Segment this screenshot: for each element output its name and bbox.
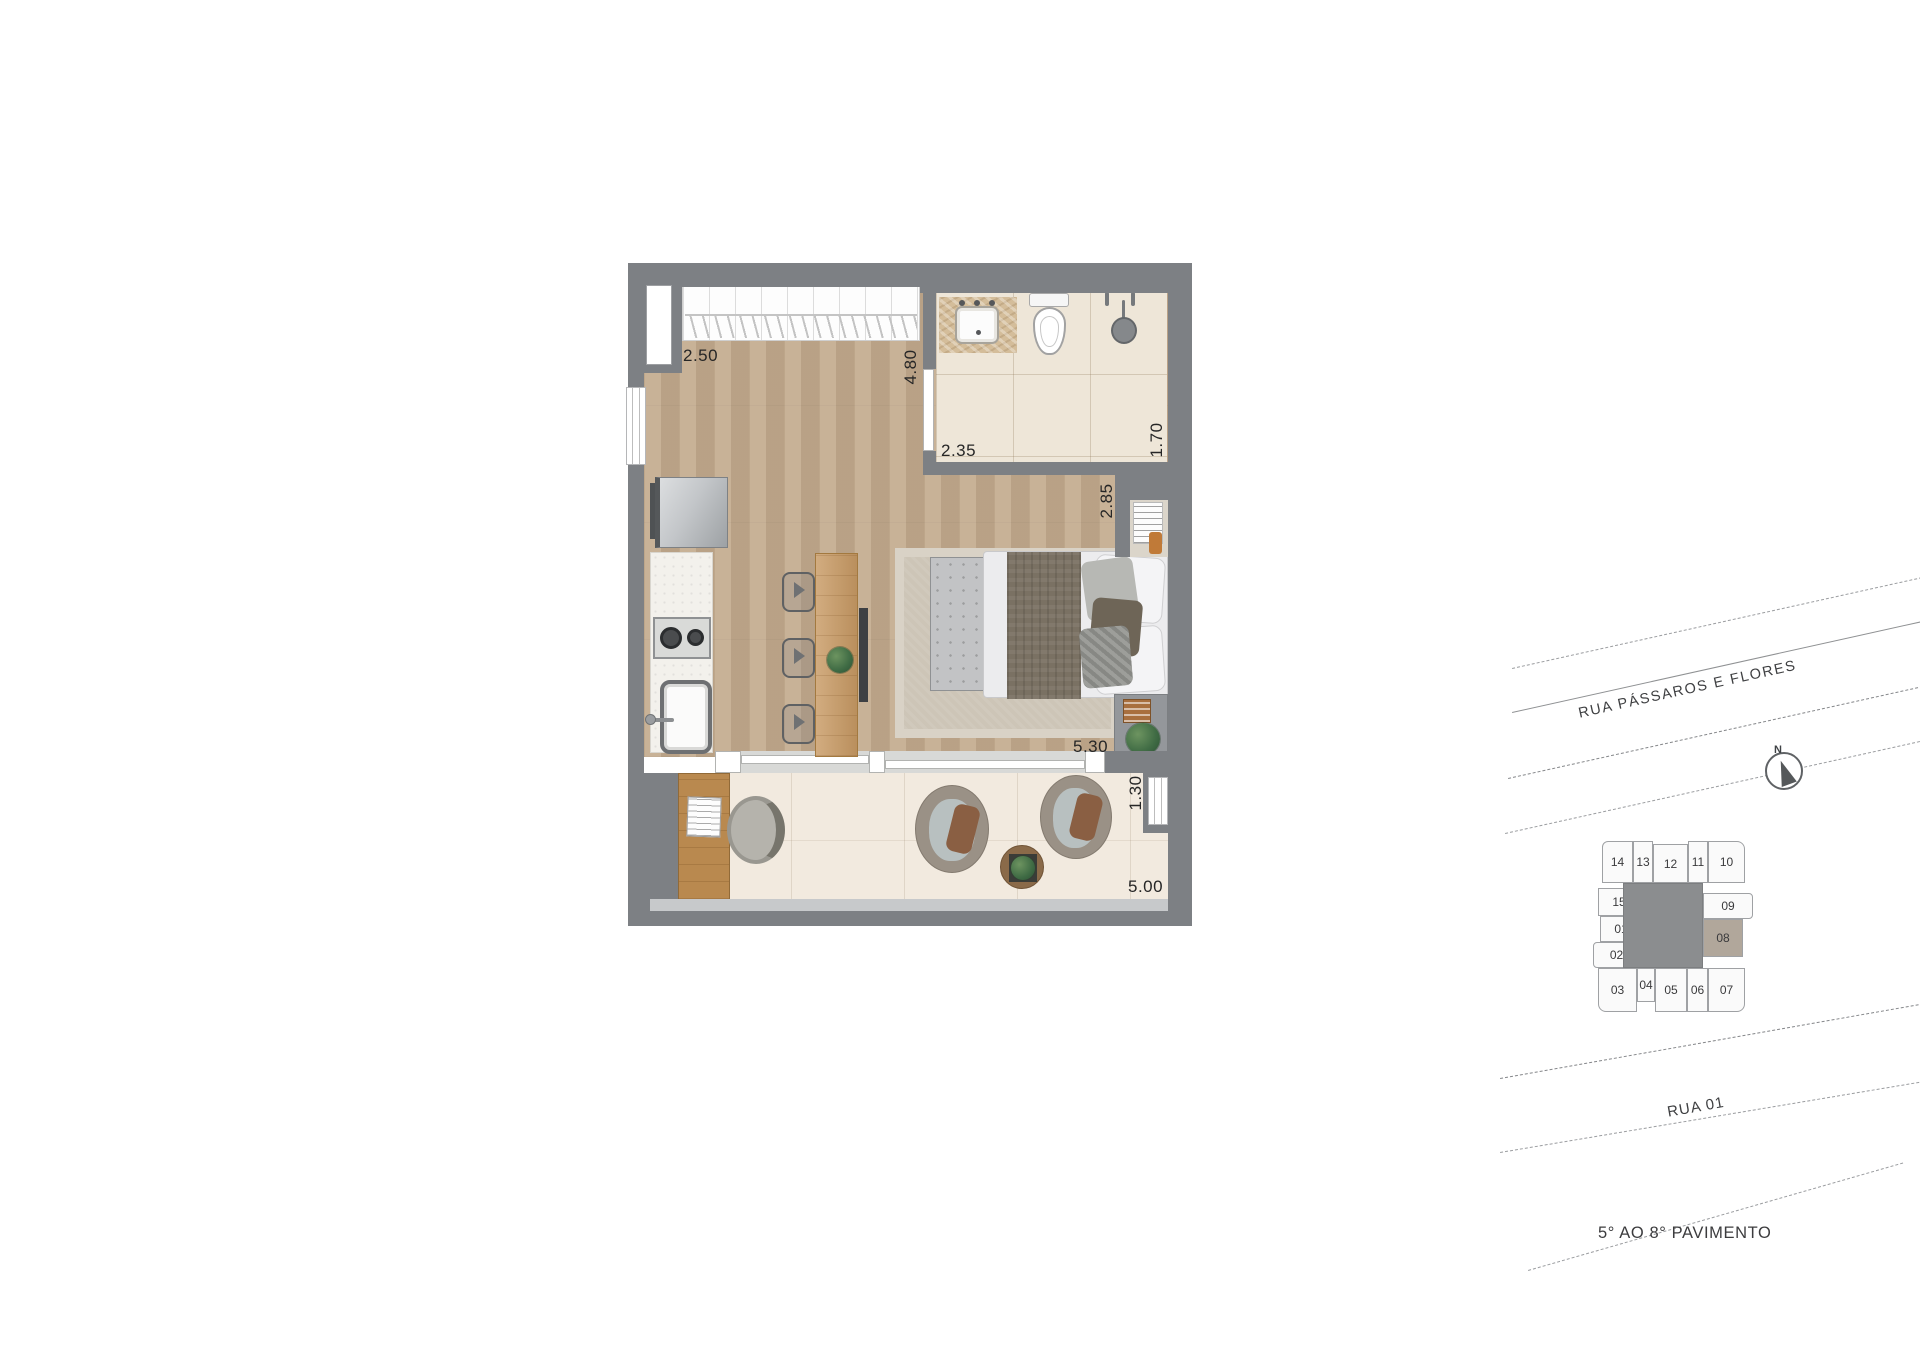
wall-top [628,263,1192,287]
wall-right [1168,263,1192,913]
dimension-bath-depth: 1.70 [1147,422,1167,457]
dimension-room-width: 5.30 [1073,737,1108,757]
bathroom-sink [955,306,999,344]
armchair-1 [915,785,989,873]
dimension-closet-width: 2.50 [683,346,718,366]
fridge [655,477,728,548]
keyplan-unit-06: 06 [1687,968,1708,1012]
island-plant [827,647,853,673]
keyplan-unit-07: 07 [1708,968,1745,1012]
bar-stool-1 [782,572,815,612]
coffee-table [1000,845,1044,889]
bed-bench [930,557,984,691]
shower-handle-1 [1105,292,1109,306]
headboard-niche [1130,500,1168,557]
shaft-niche [646,285,672,365]
wall-left [628,465,644,773]
street-bottom-line-3 [1528,1163,1903,1271]
dimension-balcony-depth: 1.30 [1126,775,1146,810]
kitchen-faucet-knob [645,714,656,725]
sink-drain [976,330,981,335]
compass-north-label: N [1774,744,1782,756]
shower-handle-2 [1131,292,1135,306]
shower-head [1111,317,1137,344]
keyplan-core [1623,883,1703,968]
nightstand [1114,694,1168,758]
street-top-line-3 [1508,681,1920,779]
bed-blanket [1007,552,1081,699]
street-bottom-line-2 [1500,1080,1920,1153]
bed-cushion-check [1078,625,1133,689]
keyplan-unit-11: 11 [1688,841,1708,883]
keyplan-unit-12: 12 [1653,844,1688,883]
sliding-door-panel-2 [885,760,1085,769]
keyplan-unit-14: 14 [1602,841,1633,883]
keyplan-unit-05: 05 [1655,968,1687,1012]
keyplan-unit-13: 13 [1633,841,1653,883]
wall-band-right [1105,751,1168,773]
wall-bathroom-bottom [923,462,1168,475]
stool-frame [794,714,805,730]
wall-headboard-stub [1115,475,1130,557]
bar-stool-2 [782,638,815,678]
keyplan-unit-08-highlighted: 08 [1703,919,1743,957]
street-top-line-4 [1505,733,1920,834]
nightstand-books [1123,699,1151,723]
dimension-balcony-width: 5.00 [1128,877,1163,897]
office-chair [727,796,785,864]
keyplan-unit-09: 09 [1703,893,1753,919]
burner-small [687,629,704,646]
street-top-line-2 [1512,616,1920,713]
toilet-bowl-inner [1040,316,1059,347]
floor-plan-page: 2.50 4.80 2.35 1.70 2.85 5.30 1.30 5.00 … [0,0,1920,1356]
coffee-table-plant [1011,856,1035,880]
stool-frame [794,648,805,664]
balcony-side-window [1148,777,1168,825]
burner-large [660,627,682,649]
balcony-sill [650,899,1168,911]
bed [983,551,1168,698]
wardrobe-closet [682,285,920,341]
bathroom-door [923,369,934,451]
wall-bathroom-top [920,285,1192,293]
stool-frame [794,582,805,598]
bar-stool-3 [782,704,815,744]
dimension-bed-width: 2.85 [1097,483,1117,518]
keyplan-unit-03: 03 [1598,968,1637,1012]
sliding-door-frame-left [715,751,741,773]
dimension-room-depth: 4.80 [901,349,921,384]
floor-caption: 5° AO 8° PAVIMENTO [1598,1224,1771,1243]
keyplan: 14 13 12 11 10 15 01 02 09 08 03 04 05 0… [1590,835,1760,1015]
entry-window [626,387,646,465]
keyplan-unit-04: 04 [1637,968,1655,1002]
wall-bottom [628,911,1192,926]
toilet-tank [1029,293,1069,307]
niche-deco-vase [1149,532,1162,554]
wall-balcony-left [628,773,678,913]
dimension-bath-width: 2.35 [941,441,976,461]
desk-laptop [686,796,721,837]
wall-bathroom-left [923,293,936,369]
sliding-door-mullion [869,751,885,773]
closet-hangers [685,316,917,338]
keyplan-unit-10: 10 [1708,841,1745,883]
kitchen-sink [660,680,712,754]
tv-panel [859,608,868,702]
street-top-line-1 [1512,571,1920,669]
armchair-2 [1040,775,1112,859]
wall-left-upper [628,373,644,387]
cooktop [653,617,711,659]
